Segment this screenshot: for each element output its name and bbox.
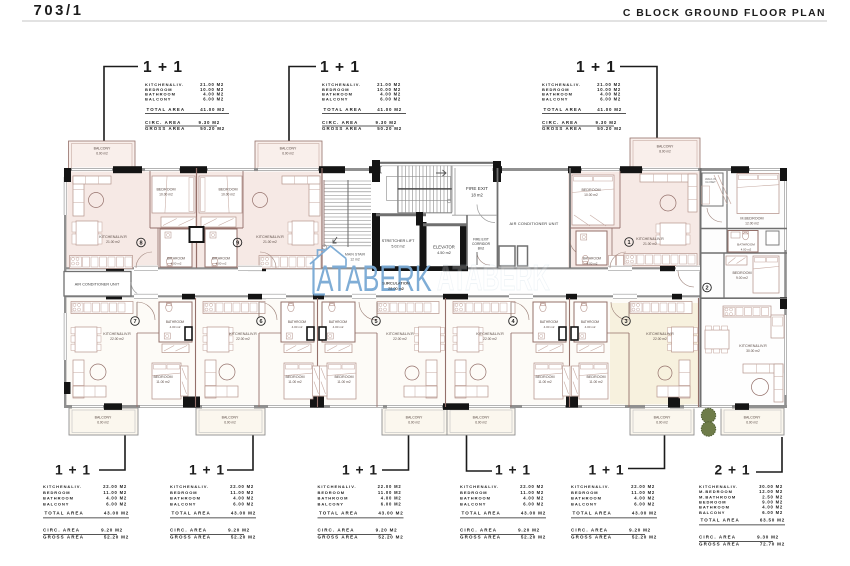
svg-text:4.00 m2: 4.00 m2 (216, 262, 227, 266)
svg-text:TOTAL AREA: TOTAL AREA (172, 511, 211, 516)
svg-text:BATHROOM: BATHROOM (43, 496, 74, 501)
svg-text:11.00 M2: 11.00 M2 (378, 490, 402, 495)
svg-text:BALCONY: BALCONY (473, 416, 490, 420)
svg-text:CORRIDOR: CORRIDOR (472, 242, 491, 246)
svg-text:8: 8 (139, 241, 142, 247)
svg-text:KITCHEN&LIV.R: KITCHEN&LIV.R (229, 332, 257, 336)
svg-text:BEDROOM: BEDROOM (285, 375, 304, 379)
svg-text:1 + 1: 1 + 1 (189, 462, 225, 477)
svg-text:BATHROOM: BATHROOM (212, 257, 231, 261)
svg-text:KITCHEN&LIV.: KITCHEN&LIV. (571, 484, 610, 489)
svg-text:BEDROOM: BEDROOM (571, 490, 599, 495)
svg-text:S.IRCULATION: S.IRCULATION (382, 281, 410, 286)
svg-text:4.50 m2: 4.50 m2 (437, 251, 451, 255)
svg-text:8m2: 8m2 (478, 247, 485, 251)
svg-text:BATHROOM: BATHROOM (460, 496, 491, 501)
svg-text:BATHROOM: BATHROOM (329, 320, 348, 324)
svg-text:BALCONY: BALCONY (145, 96, 171, 101)
svg-text:4.00 M2: 4.00 M2 (523, 496, 544, 501)
svg-text:6.00 m2: 6.00 m2 (746, 421, 758, 425)
svg-text:52.20 M2: 52.20 M2 (231, 535, 256, 540)
svg-text:KITCHEN&LIV.R: KITCHEN&LIV.R (636, 237, 664, 241)
svg-text:50.20 M2: 50.20 M2 (200, 126, 225, 131)
svg-text:21.00 m2: 21.00 m2 (263, 240, 277, 244)
svg-text:KITCHEN&LIV.: KITCHEN&LIV. (460, 484, 499, 489)
svg-text:22.00 m2: 22.00 m2 (236, 337, 250, 341)
svg-text:18 m2: 18 m2 (471, 193, 483, 198)
svg-text:BATHROOM: BATHROOM (571, 496, 602, 501)
svg-text:CIRC. AREA: CIRC. AREA (170, 527, 207, 532)
svg-text:1 + 1: 1 + 1 (576, 59, 616, 76)
svg-text:BATHROOM: BATHROOM (288, 320, 307, 324)
svg-text:8.00 m2: 8.00 m2 (659, 150, 671, 154)
svg-text:BEDROOM: BEDROOM (170, 490, 198, 495)
svg-text:6.00 M2: 6.00 M2 (762, 510, 783, 515)
svg-text:72.70 M2: 72.70 M2 (760, 542, 785, 547)
svg-text:C BLOCK GROUND FLOOR PLAN: C BLOCK GROUND FLOOR PLAN (623, 8, 826, 19)
svg-text:CIRC. AREA: CIRC. AREA (571, 527, 608, 532)
svg-text:28.00 m2: 28.00 m2 (388, 287, 404, 291)
svg-text:43.00 M2: 43.00 M2 (521, 511, 546, 516)
svg-text:BALCONY: BALCONY (571, 501, 597, 506)
svg-text:MAIN STAIR: MAIN STAIR (345, 253, 366, 257)
svg-text:BALCONY: BALCONY (222, 416, 239, 420)
svg-text:BALCONY: BALCONY (95, 416, 112, 420)
svg-text:TOTAL AREA: TOTAL AREA (462, 511, 501, 516)
svg-text:BEDROOM: BEDROOM (732, 271, 751, 275)
svg-text:CIRC. AREA: CIRC. AREA (145, 120, 181, 125)
svg-text:9.20 M2: 9.20 M2 (228, 527, 250, 532)
svg-text:CIRC. AREA: CIRC. AREA (318, 527, 355, 532)
svg-text:KITCHEN&LIV.R: KITCHEN&LIV.R (256, 235, 284, 239)
svg-text:BALCONY: BALCONY (460, 501, 486, 506)
svg-text:ATABERK: ATABERK (437, 258, 550, 298)
svg-text:BALCONY: BALCONY (318, 501, 344, 506)
svg-text:4.00 m2: 4.00 m2 (544, 325, 555, 329)
svg-text:22.00 M2: 22.00 M2 (631, 484, 655, 489)
svg-text:GROSS AREA: GROSS AREA (460, 535, 501, 540)
svg-text:22.00 m2: 22.00 m2 (110, 337, 124, 341)
svg-text:TOTAL AREA: TOTAL AREA (45, 511, 84, 516)
svg-text:6.00 M2: 6.00 M2 (523, 501, 544, 506)
svg-text:9.20 M2: 9.20 M2 (518, 527, 540, 532)
svg-text:6.00 m2: 6.00 m2 (96, 152, 108, 156)
svg-text:6.00 M2: 6.00 M2 (203, 96, 224, 101)
svg-text:6.00 M2: 6.00 M2 (634, 501, 655, 506)
svg-text:63.50 M2: 63.50 M2 (760, 518, 785, 523)
svg-text:4.00 M2: 4.00 M2 (381, 496, 402, 501)
svg-text:BEDROOM: BEDROOM (460, 490, 488, 495)
svg-text:22.00 M2: 22.00 M2 (230, 484, 254, 489)
svg-text:10.00 m2: 10.00 m2 (584, 193, 598, 197)
svg-text:BALCONY: BALCONY (744, 416, 761, 420)
svg-text:12.00 m2: 12.00 m2 (745, 222, 759, 226)
svg-text:1: 1 (627, 240, 630, 246)
svg-text:6.00 m2: 6.00 m2 (475, 421, 487, 425)
svg-text:GROSS AREA: GROSS AREA (318, 535, 359, 540)
svg-text:43.00 M2: 43.00 M2 (104, 511, 129, 516)
svg-text:1 + 1: 1 + 1 (143, 59, 183, 76)
svg-text:10.00 m2: 10.00 m2 (159, 193, 173, 197)
svg-text:BATHROOM: BATHROOM (737, 243, 755, 247)
svg-text:4.00 m2: 4.00 m2 (292, 325, 303, 329)
svg-text:2 + 1: 2 + 1 (714, 462, 750, 477)
svg-text:3: 3 (624, 319, 627, 325)
svg-text:6.00 M2: 6.00 M2 (600, 96, 621, 101)
svg-text:6.00 M2: 6.00 M2 (233, 501, 254, 506)
svg-text:4.00 m2: 4.00 m2 (170, 325, 181, 329)
svg-text:9.30 M2: 9.30 M2 (376, 120, 397, 125)
svg-text:22.00 M2: 22.00 M2 (378, 484, 402, 489)
svg-text:22.00 m2: 22.00 m2 (483, 337, 497, 341)
svg-text:AIR CONDITIONER UNIT: AIR CONDITIONER UNIT (510, 221, 559, 226)
svg-text:GROSS AREA: GROSS AREA (43, 535, 84, 540)
svg-text:BATHROOM: BATHROOM (170, 496, 201, 501)
svg-text:1 + 1: 1 + 1 (495, 462, 531, 477)
svg-text:BALCONY: BALCONY (657, 145, 674, 149)
svg-text:GROSS AREA: GROSS AREA (699, 542, 740, 547)
svg-text:FIRE EXIT: FIRE EXIT (473, 238, 489, 242)
svg-text:BEDROOM: BEDROOM (581, 188, 600, 192)
svg-text:21.00 m2: 21.00 m2 (106, 240, 120, 244)
svg-text:41.00 M2: 41.00 M2 (377, 107, 402, 112)
svg-text:BALCONY: BALCONY (322, 96, 348, 101)
svg-text:41.00 M2: 41.00 M2 (200, 107, 225, 112)
svg-text:1 + 1: 1 + 1 (55, 462, 91, 477)
svg-text:BALCONY: BALCONY (406, 416, 423, 420)
svg-text:6.00 m2: 6.00 m2 (224, 421, 236, 425)
svg-text:11.00 M2: 11.00 M2 (520, 490, 544, 495)
svg-text:52.20 M2: 52.20 M2 (521, 535, 546, 540)
svg-text:703/1: 703/1 (34, 3, 84, 19)
svg-text:GROSS AREA: GROSS AREA (322, 126, 362, 131)
svg-text:4.00 M2: 4.00 M2 (634, 496, 655, 501)
svg-text:52.20 M2: 52.20 M2 (632, 535, 657, 540)
svg-text:BALCONY: BALCONY (654, 416, 671, 420)
svg-text:FIRE EXIT: FIRE EXIT (466, 186, 488, 191)
svg-text:50.20 M2: 50.20 M2 (377, 126, 402, 131)
svg-text:GROSS AREA: GROSS AREA (571, 535, 612, 540)
svg-text:1 + 1: 1 + 1 (588, 462, 624, 477)
svg-text:CIRC. AREA: CIRC. AREA (542, 120, 578, 125)
svg-text:2: 2 (705, 286, 708, 292)
svg-text:AIR CONDITIONER UNIT: AIR CONDITIONER UNIT (75, 283, 120, 287)
svg-text:11.00 m2: 11.00 m2 (337, 380, 351, 384)
svg-text:5: 5 (374, 319, 377, 325)
svg-text:BEDROOM: BEDROOM (156, 188, 175, 192)
svg-text:6.00 M2: 6.00 M2 (106, 501, 127, 506)
svg-text:BATHROOM: BATHROOM (318, 496, 349, 501)
svg-text:6: 6 (259, 319, 262, 325)
svg-text:50.20 M2: 50.20 M2 (597, 126, 622, 131)
svg-text:9.20 M2: 9.20 M2 (376, 527, 398, 532)
svg-text:6.00 m2: 6.00 m2 (282, 152, 294, 156)
svg-text:TOTAL AREA: TOTAL AREA (324, 107, 363, 112)
svg-text:ATABERK: ATABERK (317, 257, 432, 299)
svg-text:BALCONY: BALCONY (280, 147, 297, 151)
svg-text:6.00 M2: 6.00 M2 (380, 96, 401, 101)
svg-text:BALCONY: BALCONY (542, 96, 568, 101)
svg-text:TOTAL AREA: TOTAL AREA (573, 511, 612, 516)
svg-text:6.00 m2: 6.00 m2 (408, 421, 420, 425)
svg-text:BEDROOM: BEDROOM (535, 375, 554, 379)
svg-text:KITCHEN&LIV.R: KITCHEN&LIV.R (386, 332, 414, 336)
svg-text:4.00 m2: 4.00 m2 (585, 325, 596, 329)
svg-text:9.20 M2: 9.20 M2 (101, 527, 123, 532)
svg-text:6.00 m2: 6.00 m2 (97, 421, 109, 425)
svg-text:KITCHEN&LIV.: KITCHEN&LIV. (43, 484, 82, 489)
svg-text:GROSS AREA: GROSS AREA (145, 126, 185, 131)
svg-text:KITCHEN&LIV.R: KITCHEN&LIV.R (739, 344, 767, 348)
svg-text:22.00 m2: 22.00 m2 (393, 337, 407, 341)
svg-text:11.00 M2: 11.00 M2 (631, 490, 655, 495)
svg-text:CIRC. AREA: CIRC. AREA (699, 534, 736, 539)
svg-text:41.00 M2: 41.00 M2 (597, 107, 622, 112)
svg-text:11.00 M2: 11.00 M2 (103, 490, 127, 495)
svg-text:M.BEDROOM: M.BEDROOM (740, 217, 763, 221)
svg-text:CIRC. AREA: CIRC. AREA (43, 527, 80, 532)
svg-text:BEDROOM: BEDROOM (586, 375, 605, 379)
svg-text:21.00 m2: 21.00 m2 (643, 242, 657, 246)
svg-text:GROSS AREA: GROSS AREA (542, 126, 582, 131)
svg-text:BEDROOM: BEDROOM (153, 375, 172, 379)
svg-text:43.00 M2: 43.00 M2 (378, 511, 403, 516)
svg-text:9.20 M2: 9.20 M2 (629, 527, 651, 532)
svg-text:BEDROOM: BEDROOM (218, 188, 237, 192)
svg-text:6.00 M2: 6.00 M2 (381, 501, 402, 506)
svg-text:CLOSET: CLOSET (705, 180, 716, 184)
svg-text:4.00 m2: 4.00 m2 (587, 262, 598, 266)
svg-text:BEDROOM: BEDROOM (318, 490, 346, 495)
svg-text:22.00 M2: 22.00 M2 (520, 484, 544, 489)
svg-text:5.02 m2: 5.02 m2 (391, 245, 404, 249)
svg-text:GROSS AREA: GROSS AREA (170, 535, 211, 540)
svg-text:TOTAL AREA: TOTAL AREA (147, 107, 186, 112)
svg-text:CIRC. AREA: CIRC. AREA (322, 120, 358, 125)
svg-text:7: 7 (133, 319, 136, 325)
svg-text:9.30 M2: 9.30 M2 (757, 534, 779, 539)
svg-text:11.00 M2: 11.00 M2 (230, 490, 254, 495)
svg-text:CIRC. AREA: CIRC. AREA (460, 527, 497, 532)
svg-text:BATHROOM: BATHROOM (581, 320, 600, 324)
svg-text:4.00 m2: 4.00 m2 (171, 262, 182, 266)
svg-text:KITCHEN&LIV.R: KITCHEN&LIV.R (99, 235, 127, 239)
svg-text:KITCHEN&LIV.R: KITCHEN&LIV.R (646, 332, 674, 336)
svg-text:BALCONY: BALCONY (94, 147, 111, 151)
svg-text:4.00 m2: 4.00 m2 (741, 248, 752, 252)
svg-text:BEDROOM: BEDROOM (43, 490, 71, 495)
svg-text:BATHROOM: BATHROOM (167, 257, 186, 261)
svg-text:4.00 m2: 4.00 m2 (333, 325, 344, 329)
svg-text:KITCHEN&LIV.: KITCHEN&LIV. (170, 484, 209, 489)
svg-text:30.00 m2: 30.00 m2 (746, 349, 760, 353)
svg-text:11.00 m2: 11.00 m2 (538, 380, 552, 384)
svg-text:TOTAL AREA: TOTAL AREA (319, 511, 358, 516)
svg-text:9: 9 (236, 241, 239, 247)
svg-text:22.00 M2: 22.00 M2 (103, 484, 127, 489)
svg-text:1 + 1: 1 + 1 (320, 59, 360, 76)
svg-text:9.00 m2: 9.00 m2 (736, 276, 748, 280)
svg-text:TOTAL AREA: TOTAL AREA (701, 518, 740, 523)
svg-text:BEDROOM: BEDROOM (334, 375, 353, 379)
svg-text:10.00 m2: 10.00 m2 (221, 193, 235, 197)
svg-text:11.00 m2: 11.00 m2 (156, 380, 170, 384)
svg-text:9.30 M2: 9.30 M2 (596, 120, 617, 125)
svg-text:11.00 m2: 11.00 m2 (589, 380, 603, 384)
svg-text:43.00 M2: 43.00 M2 (632, 511, 657, 516)
svg-text:BALCONY: BALCONY (170, 501, 196, 506)
svg-text:52.20 M2: 52.20 M2 (104, 535, 129, 540)
svg-text:BALCONY: BALCONY (699, 510, 725, 515)
svg-text:BATHROOM: BATHROOM (540, 320, 559, 324)
svg-text:BATHROOM: BATHROOM (583, 257, 602, 261)
svg-text:11.00 m2: 11.00 m2 (288, 380, 302, 384)
svg-text:TOTAL AREA: TOTAL AREA (544, 107, 583, 112)
svg-text:BATHROOM: BATHROOM (166, 320, 185, 324)
svg-text:1 + 1: 1 + 1 (342, 462, 378, 477)
svg-text:4.00 M2: 4.00 M2 (233, 496, 254, 501)
svg-text:6.00 m2: 6.00 m2 (656, 421, 668, 425)
svg-text:4.00 M2: 4.00 M2 (106, 496, 127, 501)
svg-text:ELEVATOR: ELEVATOR (433, 245, 455, 250)
svg-text:KITCHEN&LIV.R: KITCHEN&LIV.R (103, 332, 131, 336)
svg-text:KITCHEN&LIV.R: KITCHEN&LIV.R (476, 332, 504, 336)
svg-text:KITCHEN&LIV.: KITCHEN&LIV. (318, 484, 357, 489)
svg-text:BALCONY: BALCONY (43, 501, 69, 506)
svg-text:43.00 M2: 43.00 M2 (231, 511, 256, 516)
svg-text:22.00 m2: 22.00 m2 (653, 337, 667, 341)
svg-text:STRETCHER LIFT: STRETCHER LIFT (382, 238, 415, 243)
svg-text:52.20 M2: 52.20 M2 (378, 535, 403, 540)
svg-text:9.30 M2: 9.30 M2 (199, 120, 220, 125)
